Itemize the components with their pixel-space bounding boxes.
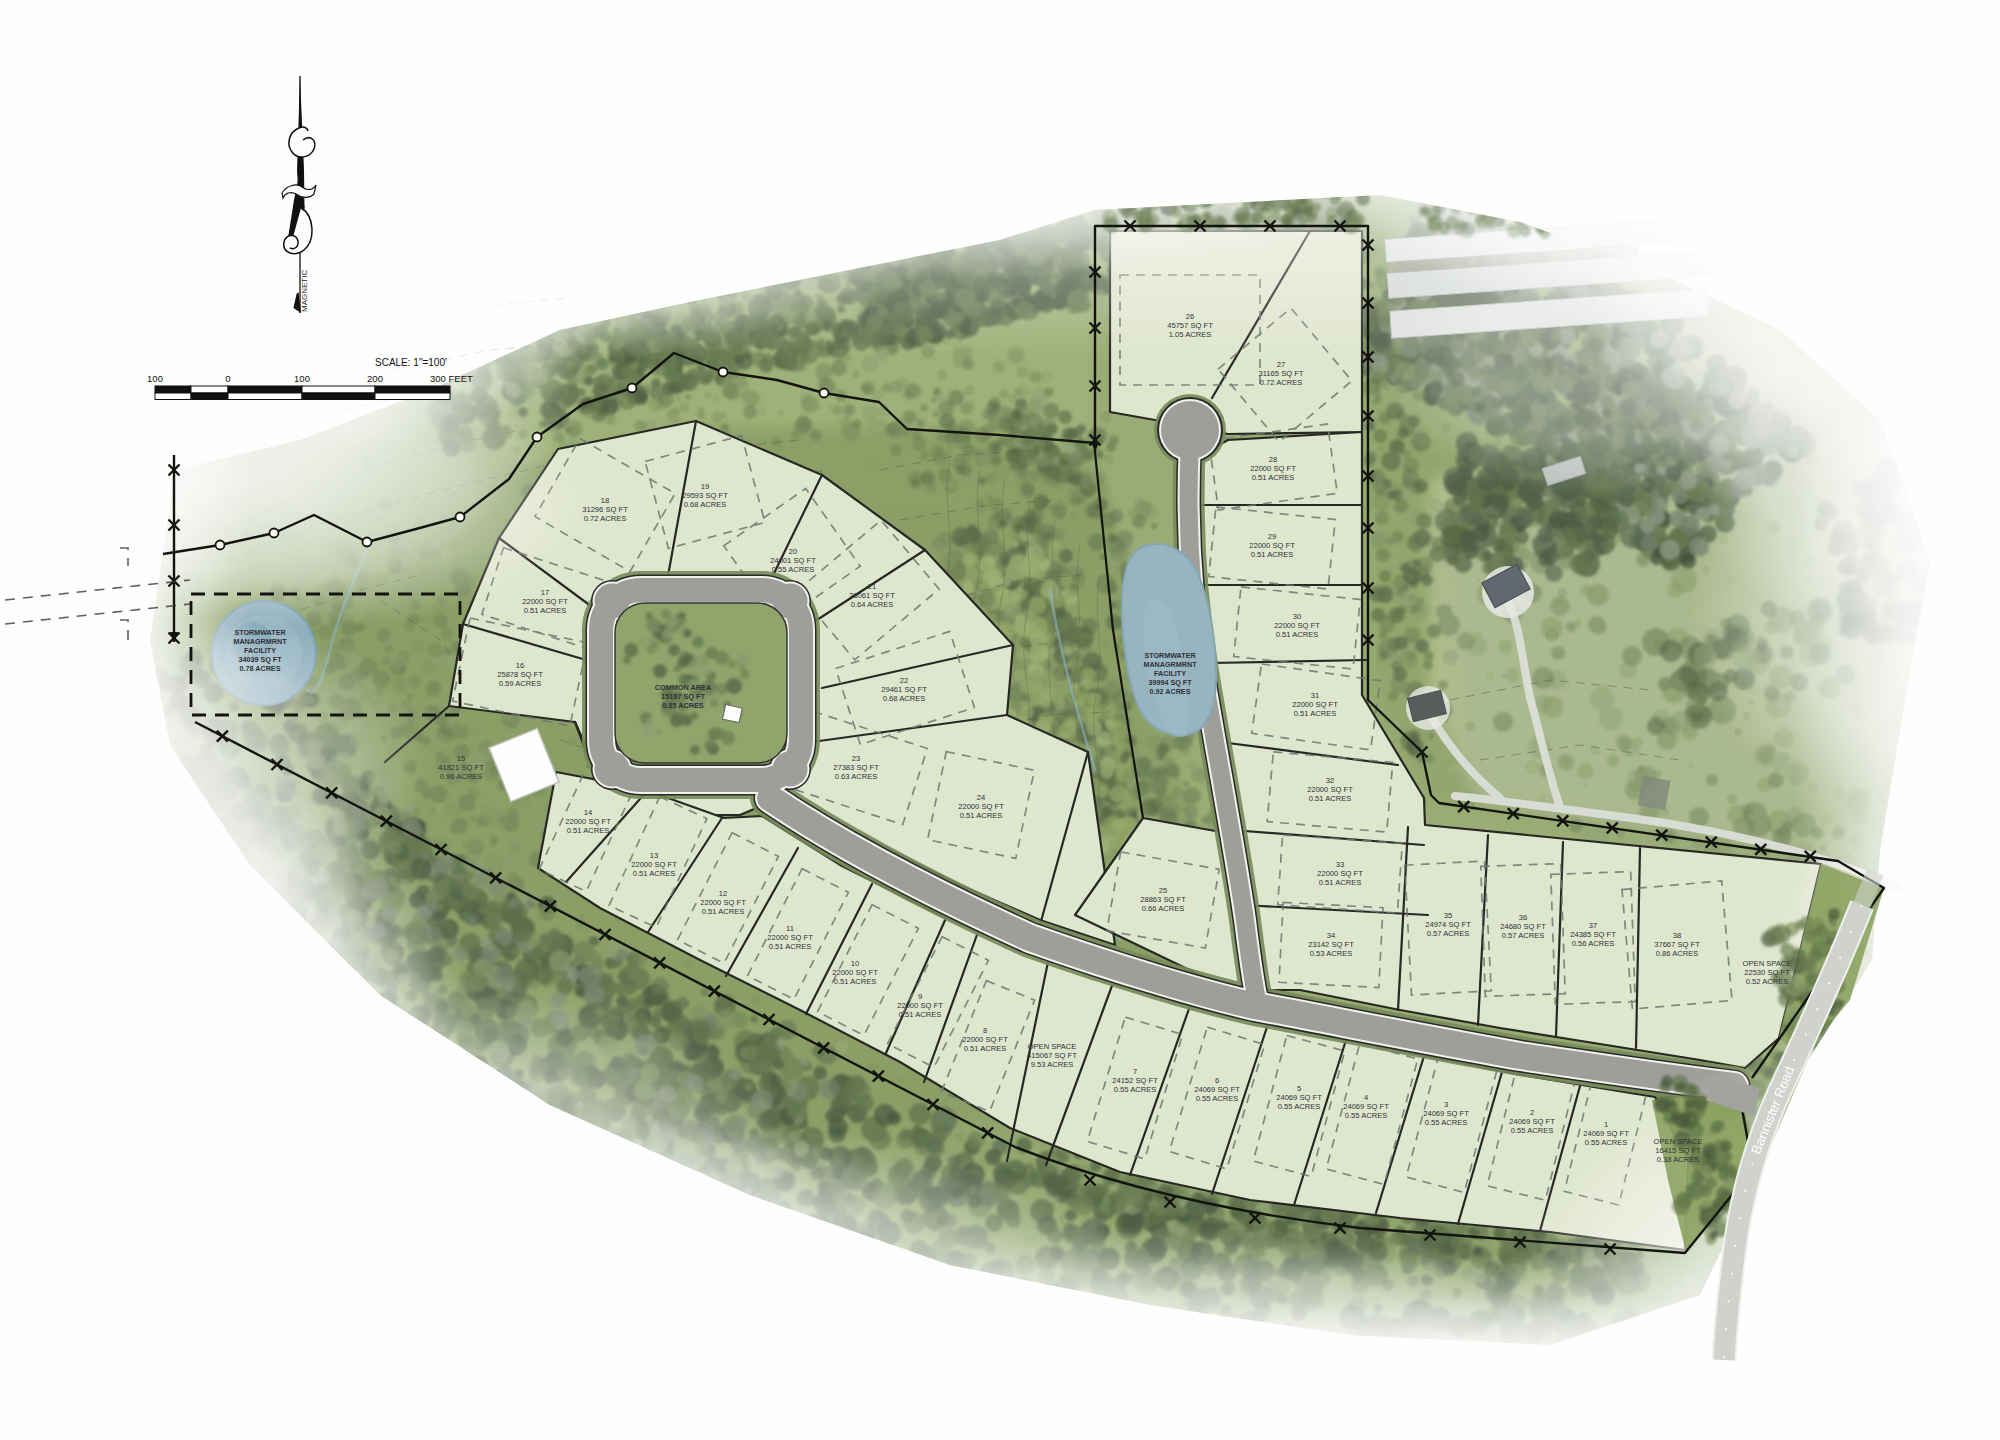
svg-text:0.51 ACRES: 0.51 ACRES: [524, 606, 567, 615]
svg-text:28863 SQ FT: 28863 SQ FT: [1140, 895, 1186, 904]
svg-text:8: 8: [983, 1026, 987, 1035]
svg-text:22000 SQ FT: 22000 SQ FT: [767, 933, 813, 942]
svg-text:0.51 ACRES: 0.51 ACRES: [834, 977, 877, 986]
svg-text:22000 SQ FT: 22000 SQ FT: [631, 860, 677, 869]
svg-text:0.57 ACRES: 0.57 ACRES: [1502, 931, 1545, 940]
svg-text:34: 34: [1327, 931, 1335, 940]
svg-text:OPEN SPACE: OPEN SPACE: [1028, 1042, 1077, 1051]
svg-text:0.55 ACRES: 0.55 ACRES: [1425, 1118, 1468, 1127]
svg-text:0.51 ACRES: 0.51 ACRES: [567, 826, 610, 835]
svg-text:35: 35: [1444, 911, 1452, 920]
svg-text:31: 31: [1311, 691, 1319, 700]
svg-text:14: 14: [584, 808, 592, 817]
svg-text:STORMWATER: STORMWATER: [1144, 651, 1196, 660]
svg-text:STORMWATER: STORMWATER: [234, 628, 286, 637]
svg-text:0.35 ACRES: 0.35 ACRES: [662, 701, 704, 710]
svg-text:0.55 ACRES: 0.55 ACRES: [1585, 1138, 1628, 1147]
svg-text:0.55 ACRES: 0.55 ACRES: [1511, 1126, 1554, 1135]
svg-text:24069 SQ FT: 24069 SQ FT: [1583, 1129, 1629, 1138]
svg-text:2: 2: [1530, 1108, 1534, 1117]
svg-text:23142 SQ FT: 23142 SQ FT: [1308, 940, 1354, 949]
svg-text:19: 19: [701, 482, 709, 491]
svg-text:24069 SQ FT: 24069 SQ FT: [1423, 1109, 1469, 1118]
svg-text:22000 SQ FT: 22000 SQ FT: [1250, 464, 1296, 473]
svg-text:29461 SQ FT: 29461 SQ FT: [881, 685, 927, 694]
svg-text:0.52 ACRES: 0.52 ACRES: [1746, 977, 1789, 986]
svg-text:22000 SQ FT: 22000 SQ FT: [962, 1035, 1008, 1044]
svg-text:MANAGRMRNT: MANAGRMRNT: [1143, 660, 1197, 669]
svg-text:22000 SQ FT: 22000 SQ FT: [1249, 541, 1295, 550]
svg-text:0.55 ACRES: 0.55 ACRES: [1196, 1094, 1239, 1103]
svg-text:22000 SQ FT: 22000 SQ FT: [1317, 869, 1363, 878]
svg-text:25: 25: [1159, 886, 1167, 895]
svg-text:0.64 ACRES: 0.64 ACRES: [851, 600, 894, 609]
svg-text:MANAGRMRNT: MANAGRMRNT: [233, 637, 287, 646]
svg-text:0.59 ACRES: 0.59 ACRES: [499, 679, 542, 688]
svg-text:21: 21: [868, 582, 876, 591]
svg-text:1: 1: [1604, 1120, 1608, 1129]
svg-text:0.56 ACRES: 0.56 ACRES: [1572, 939, 1615, 948]
svg-text:7: 7: [1133, 1067, 1137, 1076]
svg-text:36: 36: [1519, 913, 1527, 922]
svg-text:41821 SQ FT: 41821 SQ FT: [438, 763, 484, 772]
svg-text:OPEN SPACE: OPEN SPACE: [1654, 1137, 1703, 1146]
svg-text:22000 SQ FT: 22000 SQ FT: [522, 597, 568, 606]
svg-text:17: 17: [541, 588, 549, 597]
svg-text:0.92 ACRES: 0.92 ACRES: [1150, 687, 1191, 696]
svg-text:24: 24: [977, 793, 985, 802]
svg-text:27: 27: [1277, 360, 1285, 369]
svg-text:22: 22: [900, 676, 908, 685]
svg-text:0.51 ACRES: 0.51 ACRES: [1294, 709, 1337, 718]
svg-text:24069 SQ FT: 24069 SQ FT: [1276, 1093, 1322, 1102]
svg-text:0.68 ACRES: 0.68 ACRES: [684, 500, 727, 509]
svg-text:25878 SQ FT: 25878 SQ FT: [497, 670, 543, 679]
svg-text:22000 SQ FT: 22000 SQ FT: [958, 802, 1004, 811]
svg-text:0.55 ACRES: 0.55 ACRES: [772, 565, 815, 574]
svg-text:0.51 ACRES: 0.51 ACRES: [1319, 878, 1362, 887]
svg-text:27383 SQ FT: 27383 SQ FT: [833, 763, 879, 772]
svg-text:3: 3: [1444, 1100, 1448, 1109]
svg-text:32: 32: [1326, 776, 1334, 785]
svg-text:10: 10: [851, 959, 859, 968]
svg-text:0.72 ACRES: 0.72 ACRES: [1260, 378, 1303, 387]
svg-text:0.55 ACRES: 0.55 ACRES: [1114, 1085, 1157, 1094]
svg-text:20: 20: [789, 547, 797, 556]
svg-text:22530 SQ FT: 22530 SQ FT: [1744, 968, 1790, 977]
svg-text:0.57 ACRES: 0.57 ACRES: [1427, 929, 1470, 938]
svg-text:26: 26: [1186, 312, 1194, 321]
svg-text:39994 SQ FT: 39994 SQ FT: [1148, 678, 1192, 687]
svg-text:22000 SQ FT: 22000 SQ FT: [1292, 700, 1338, 709]
svg-text:30: 30: [1293, 612, 1301, 621]
svg-text:24680 SQ FT: 24680 SQ FT: [1500, 922, 1546, 931]
svg-text:12: 12: [719, 889, 727, 898]
svg-text:16415 SQ FT: 16415 SQ FT: [1655, 1146, 1701, 1155]
svg-text:MAGNETIC: MAGNETIC: [300, 270, 309, 312]
svg-text:6: 6: [1215, 1076, 1219, 1085]
svg-text:0.51 ACRES: 0.51 ACRES: [1309, 794, 1352, 803]
svg-text:15197 SQ FT: 15197 SQ FT: [661, 692, 705, 701]
svg-text:5: 5: [1297, 1084, 1301, 1093]
svg-text:SCALE: 1"=100': SCALE: 1"=100': [375, 357, 447, 368]
svg-text:45757 SQ FT: 45757 SQ FT: [1167, 321, 1213, 330]
svg-text:0.38 ACRES: 0.38 ACRES: [1657, 1155, 1700, 1164]
svg-text:24152 SQ FT: 24152 SQ FT: [1112, 1076, 1158, 1085]
svg-text:FACILITY: FACILITY: [1154, 669, 1186, 678]
svg-text:29: 29: [1268, 532, 1276, 541]
svg-text:15: 15: [457, 754, 465, 763]
svg-text:COMMON AREA: COMMON AREA: [655, 683, 712, 692]
svg-text:0: 0: [225, 373, 230, 384]
svg-text:FACILITY: FACILITY: [244, 646, 276, 655]
svg-text:16: 16: [516, 661, 524, 670]
svg-text:0.68 ACRES: 0.68 ACRES: [883, 694, 926, 703]
svg-text:0.66 ACRES: 0.66 ACRES: [1142, 904, 1185, 913]
svg-text:22000 SQ FT: 22000 SQ FT: [1307, 785, 1353, 794]
svg-text:38: 38: [1673, 931, 1681, 940]
svg-text:22000 SQ FT: 22000 SQ FT: [832, 968, 878, 977]
svg-text:0.51 ACRES: 0.51 ACRES: [1251, 550, 1294, 559]
svg-text:0.51 ACRES: 0.51 ACRES: [960, 811, 1003, 820]
svg-text:0.51 ACRES: 0.51 ACRES: [964, 1044, 1007, 1053]
svg-text:22000 SQ FT: 22000 SQ FT: [700, 898, 746, 907]
svg-text:0.63 ACRES: 0.63 ACRES: [835, 772, 878, 781]
svg-text:34039 SQ FT: 34039 SQ FT: [238, 655, 282, 664]
svg-text:300 FEET: 300 FEET: [430, 373, 473, 384]
svg-text:22000 SQ FT: 22000 SQ FT: [897, 1001, 943, 1010]
svg-text:415067 SQ FT: 415067 SQ FT: [1027, 1051, 1077, 1060]
svg-text:100: 100: [147, 373, 163, 384]
svg-text:33: 33: [1336, 860, 1344, 869]
svg-text:9: 9: [918, 992, 922, 1001]
svg-text:24069 SQ FT: 24069 SQ FT: [1509, 1117, 1555, 1126]
svg-text:31165 SQ FT: 31165 SQ FT: [1258, 369, 1303, 378]
svg-text:23: 23: [852, 754, 860, 763]
svg-text:1.05 ACRES: 1.05 ACRES: [1169, 330, 1212, 339]
svg-text:13: 13: [650, 851, 658, 860]
svg-text:0.51 ACRES: 0.51 ACRES: [1252, 473, 1295, 482]
svg-text:22000 SQ FT: 22000 SQ FT: [565, 817, 611, 826]
svg-text:0.51 ACRES: 0.51 ACRES: [1276, 630, 1319, 639]
svg-text:24385 SQ FT: 24385 SQ FT: [1570, 930, 1616, 939]
svg-text:0.51 ACRES: 0.51 ACRES: [769, 942, 812, 951]
svg-text:31296 SQ FT: 31296 SQ FT: [582, 505, 628, 514]
svg-text:24069 SQ FT: 24069 SQ FT: [1194, 1085, 1240, 1094]
svg-text:9.53 ACRES: 9.53 ACRES: [1031, 1060, 1074, 1069]
svg-text:0.51 ACRES: 0.51 ACRES: [633, 869, 676, 878]
svg-text:0.96 ACRES: 0.96 ACRES: [440, 772, 483, 781]
svg-text:0.86 ACRES: 0.86 ACRES: [1656, 949, 1699, 958]
svg-text:0.55 ACRES: 0.55 ACRES: [1345, 1111, 1388, 1120]
svg-text:100: 100: [294, 373, 310, 384]
svg-text:24069 SQ FT: 24069 SQ FT: [1343, 1102, 1389, 1111]
svg-text:0.53 ACRES: 0.53 ACRES: [1310, 949, 1353, 958]
svg-text:37667 SQ FT: 37667 SQ FT: [1654, 940, 1700, 949]
svg-text:0.72 ACRES: 0.72 ACRES: [584, 514, 627, 523]
svg-text:4: 4: [1364, 1093, 1368, 1102]
svg-text:29593 SQ FT: 29593 SQ FT: [682, 491, 728, 500]
svg-text:22000 SQ FT: 22000 SQ FT: [1274, 621, 1320, 630]
svg-text:28: 28: [1269, 455, 1277, 464]
svg-text:18: 18: [601, 496, 609, 505]
svg-text:OPEN SPACE: OPEN SPACE: [1743, 959, 1792, 968]
svg-text:11: 11: [786, 924, 794, 933]
svg-text:37: 37: [1589, 921, 1597, 930]
svg-text:0.51 ACRES: 0.51 ACRES: [702, 907, 745, 916]
svg-text:24001 SQ FT: 24001 SQ FT: [770, 556, 816, 565]
svg-text:0.78 ACRES: 0.78 ACRES: [240, 664, 281, 673]
svg-text:0.51 ACRES: 0.51 ACRES: [899, 1010, 942, 1019]
svg-text:200: 200: [367, 373, 383, 384]
svg-text:24974 SQ FT: 24974 SQ FT: [1425, 920, 1471, 929]
svg-text:28061 SQ FT: 28061 SQ FT: [849, 591, 895, 600]
svg-text:0.55 ACRES: 0.55 ACRES: [1278, 1102, 1321, 1111]
